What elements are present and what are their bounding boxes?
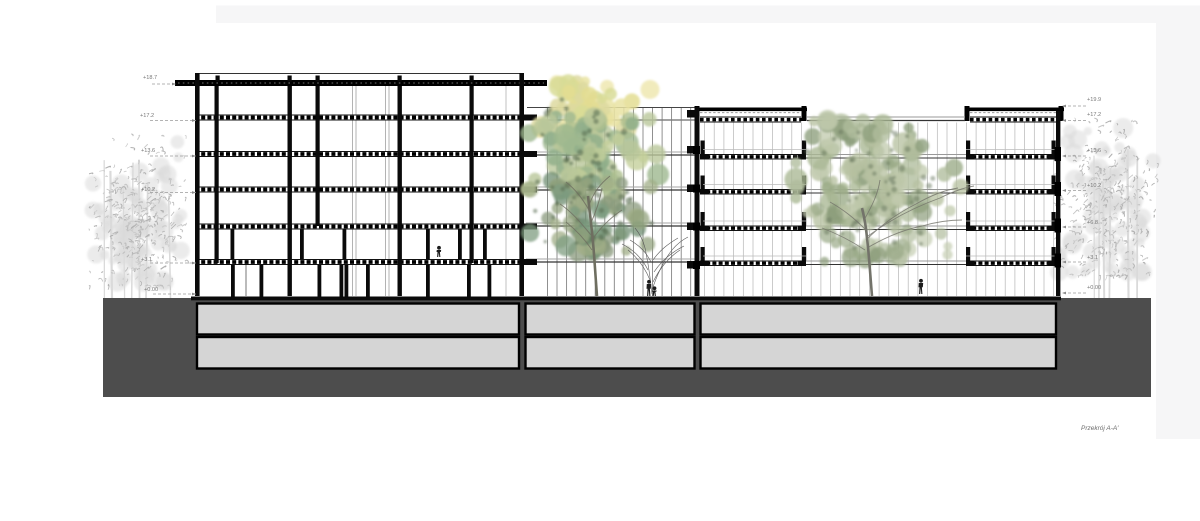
svg-text:+3.1: +3.1 (141, 257, 152, 263)
svg-text:+0.00: +0.00 (144, 287, 158, 293)
svg-text:+10.2: +10.2 (141, 187, 155, 193)
svg-text:+3.1: +3.1 (1087, 255, 1098, 261)
svg-text:+13.6: +13.6 (141, 148, 155, 154)
svg-text:+6.8: +6.8 (1087, 220, 1098, 226)
svg-text:+19.9: +19.9 (1087, 97, 1101, 103)
svg-text:+17.2: +17.2 (140, 113, 154, 119)
svg-text:Przekrój A-A′: Przekrój A-A′ (1081, 425, 1119, 432)
svg-text:+0.00: +0.00 (1087, 285, 1101, 291)
svg-text:+17.2: +17.2 (1087, 112, 1101, 118)
svg-text:+10.2: +10.2 (1087, 183, 1101, 189)
svg-text:+13.6: +13.6 (1087, 148, 1101, 154)
svg-text:+18.7: +18.7 (143, 75, 157, 81)
